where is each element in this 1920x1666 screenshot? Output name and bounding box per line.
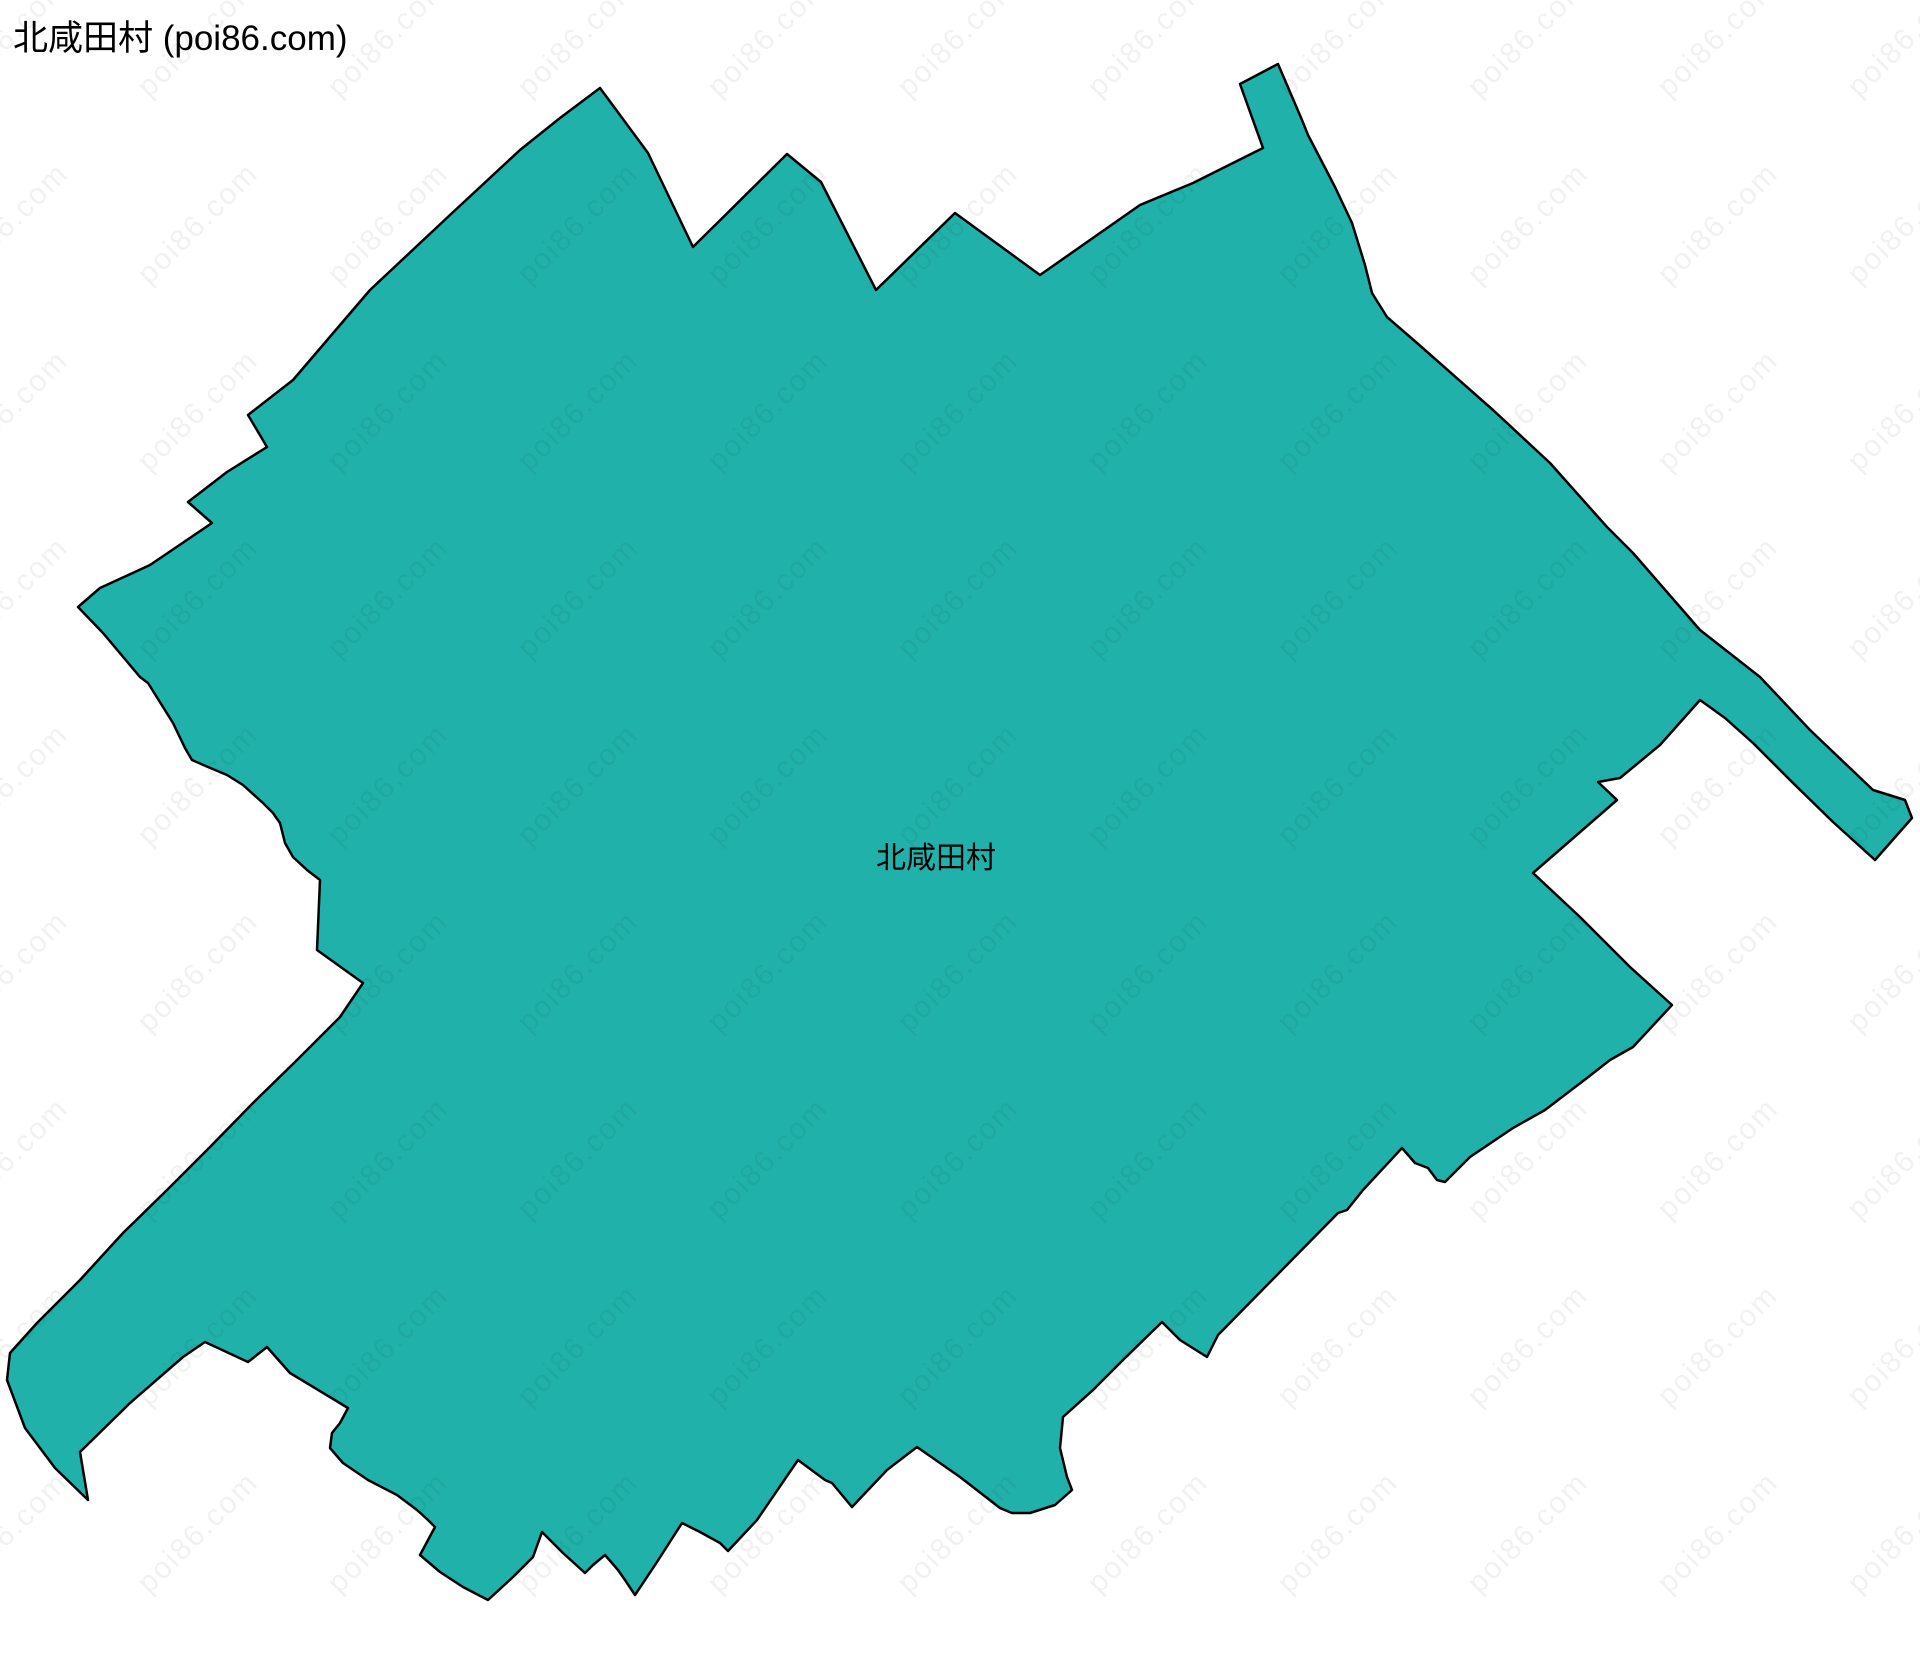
region-label: 北咸田村 [876,833,996,877]
page-title: 北咸田村 (poi86.com) [13,10,348,61]
map-page: poi86.compoi86.compoi86.compoi86.compoi8… [0,0,1920,1666]
region-boundary-polygon [7,64,1912,1600]
